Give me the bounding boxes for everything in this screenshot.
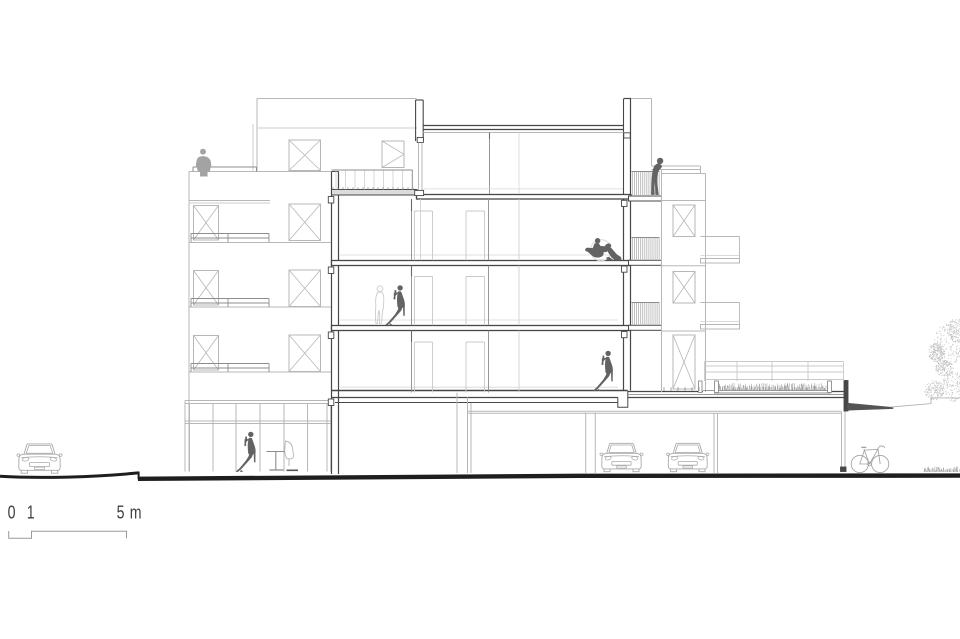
svg-text:1: 1 <box>27 503 35 523</box>
svg-text:m: m <box>130 503 142 523</box>
svg-text:0: 0 <box>8 503 16 523</box>
svg-text:5: 5 <box>117 503 125 523</box>
